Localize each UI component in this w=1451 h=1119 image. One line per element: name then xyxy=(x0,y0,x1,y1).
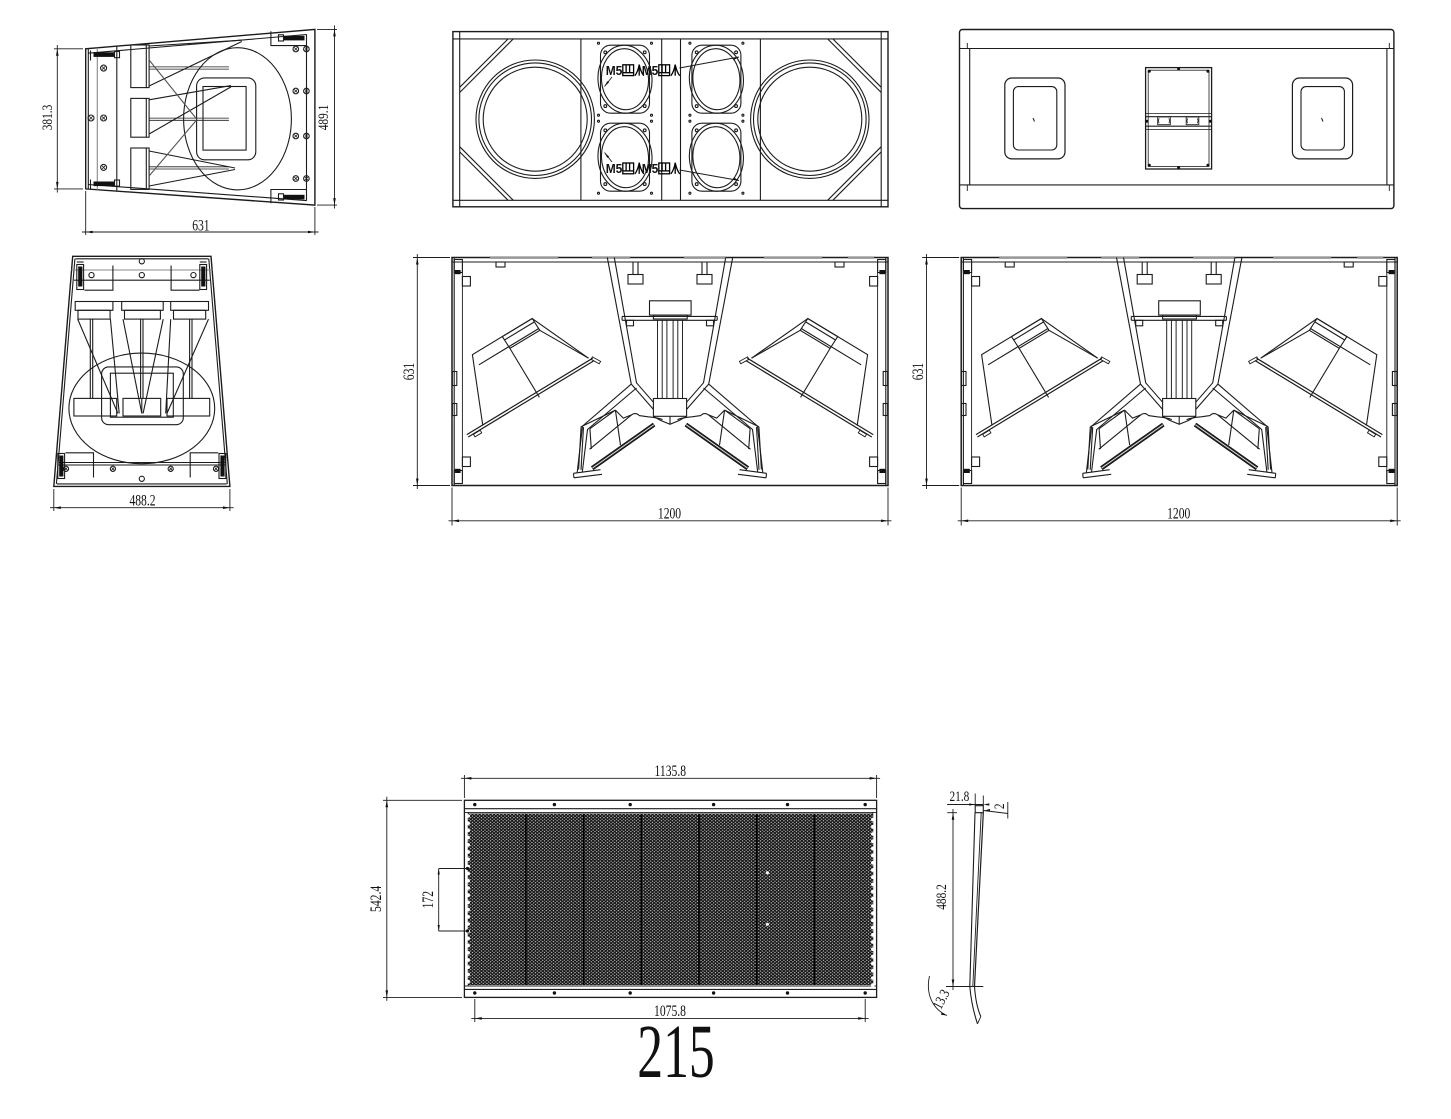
svg-text:542.4: 542.4 xyxy=(367,886,384,912)
svg-text:21.8: 21.8 xyxy=(950,788,970,805)
svg-text:489.1: 489.1 xyxy=(315,105,332,130)
svg-text:M5: M5 xyxy=(642,162,659,177)
svg-text:381.3: 381.3 xyxy=(38,105,55,130)
svg-text:172: 172 xyxy=(419,891,436,909)
svg-text:M5: M5 xyxy=(606,63,623,78)
svg-text:2: 2 xyxy=(991,803,1008,809)
svg-text:488.2: 488.2 xyxy=(129,492,155,509)
svg-text:M5: M5 xyxy=(642,63,659,78)
svg-text:631: 631 xyxy=(192,217,210,234)
svg-text:488.2: 488.2 xyxy=(932,884,949,909)
svg-text:215: 215 xyxy=(637,1010,714,1094)
svg-text:M5: M5 xyxy=(606,162,623,177)
svg-text:1135.8: 1135.8 xyxy=(655,762,687,779)
